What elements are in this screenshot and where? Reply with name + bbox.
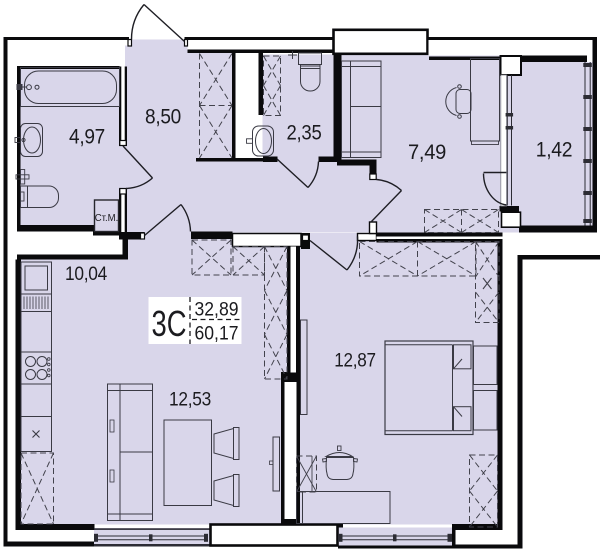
- svg-text:2,35: 2,35: [287, 122, 322, 145]
- svg-text:Ст.М.: Ст.М.: [95, 212, 119, 224]
- svg-text:32,89: 32,89: [195, 300, 239, 321]
- svg-text:12,87: 12,87: [334, 351, 376, 372]
- svg-text:3C: 3C: [152, 303, 187, 344]
- svg-text:4,97: 4,97: [69, 126, 105, 149]
- svg-text:10,04: 10,04: [65, 264, 108, 285]
- svg-text:8,50: 8,50: [145, 106, 181, 129]
- svg-text:1,42: 1,42: [536, 139, 573, 162]
- svg-text:60,17: 60,17: [195, 323, 239, 344]
- svg-text:7,49: 7,49: [408, 141, 446, 164]
- svg-text:12,53: 12,53: [169, 390, 211, 411]
